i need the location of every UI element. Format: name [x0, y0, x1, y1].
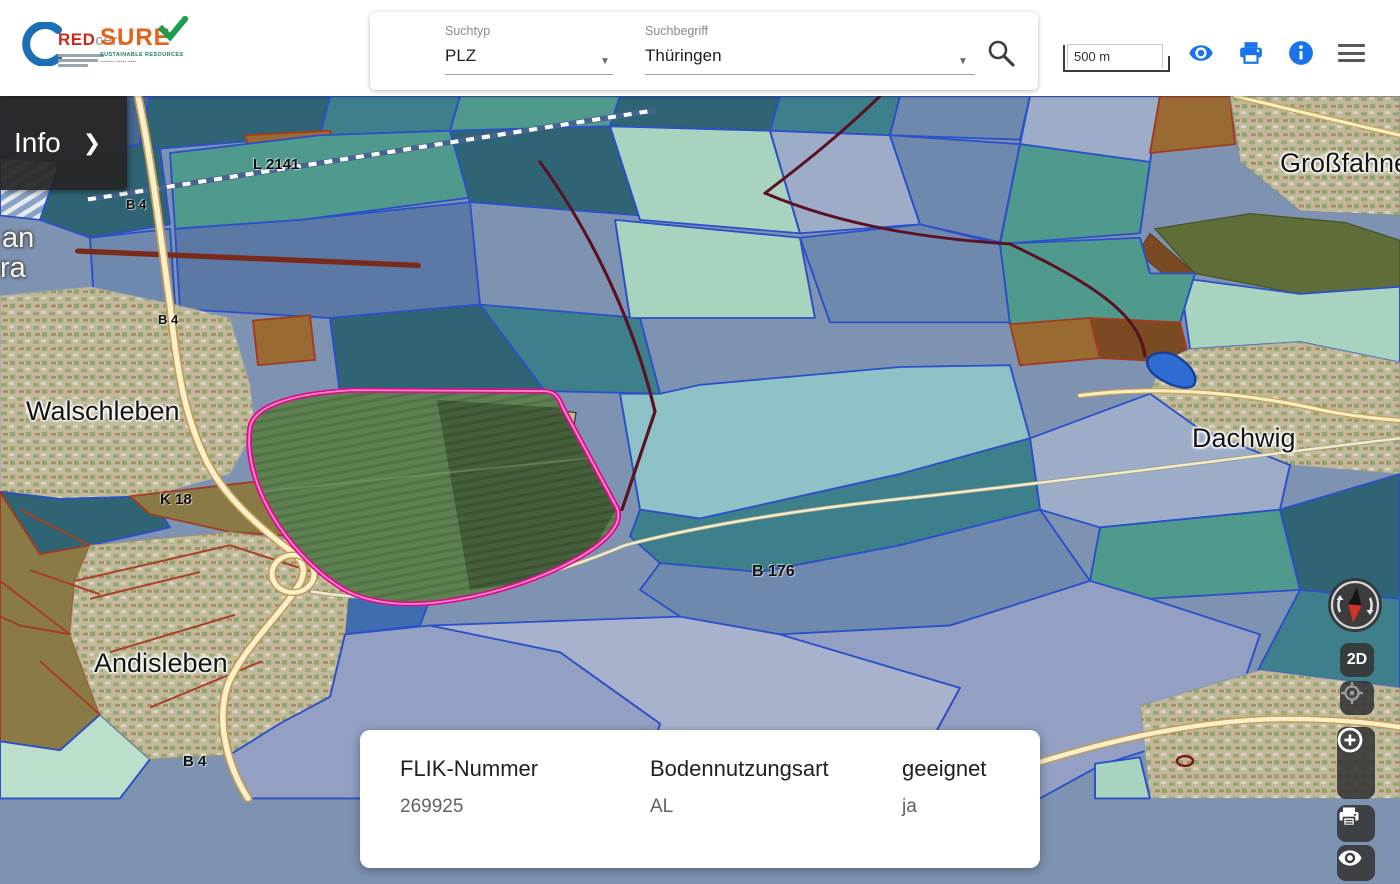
- map-view[interactable]: Walschleben Andisleben Dachwig Großfahne…: [0, 96, 1400, 884]
- parcel-info-card: FLIK-Nummer 269925 Bodennutzungsart AL g…: [360, 730, 1040, 868]
- sure-smallprint: ▪▪▪▪▪▪▪ ▪▪▪▪▪ ▪▪▪▪: [100, 59, 190, 65]
- search-card: Suchtyp PLZ ▼ Suchbegriff Thüringen ▼: [370, 12, 1038, 90]
- mode-2d-label: 2D: [1347, 651, 1367, 669]
- search-type-value[interactable]: PLZ: [445, 46, 613, 66]
- info-button[interactable]: [1288, 40, 1314, 66]
- locate-button[interactable]: [1340, 681, 1374, 715]
- scale-bar: 500 m: [1063, 42, 1170, 72]
- flik-number-column: FLIK-Nummer 269925: [400, 756, 650, 868]
- field-underline: [445, 74, 613, 75]
- suitability-column: geeignet ja: [902, 756, 1040, 868]
- sure-check-icon: [158, 16, 188, 42]
- toggle-2d-button[interactable]: 2D: [1340, 643, 1374, 677]
- minus-icon: [1337, 727, 1363, 753]
- eye-icon: [1188, 40, 1214, 66]
- search-type-label: Suchtyp: [445, 24, 613, 38]
- suitability-label: geeignet: [902, 756, 1040, 782]
- scale-label: 500 m: [1067, 44, 1163, 68]
- crosshair-icon: [1340, 681, 1364, 705]
- chevron-down-icon[interactable]: ▼: [600, 56, 610, 67]
- sure-logo: SURE SUSTAINABLE RESOURCES ▪▪▪▪▪▪▪ ▪▪▪▪▪…: [100, 26, 190, 76]
- layer-visibility-button[interactable]: [1337, 845, 1375, 881]
- menu-button[interactable]: [1338, 44, 1365, 64]
- print-button[interactable]: [1238, 40, 1264, 66]
- redcert-crescent-icon: [22, 22, 62, 66]
- land-use-value: AL: [650, 796, 902, 818]
- zoom-controls: [1337, 727, 1375, 799]
- zoom-out-button[interactable]: [1337, 763, 1375, 799]
- flik-number-label: FLIK-Nummer: [400, 756, 650, 782]
- flik-number-value: 269925: [400, 796, 650, 818]
- map-print-button[interactable]: [1337, 805, 1375, 842]
- land-use-label: Bodennutzungsart: [650, 756, 902, 782]
- chevron-down-icon[interactable]: ▼: [958, 56, 968, 67]
- printer-icon: [1337, 805, 1361, 829]
- search-term-value[interactable]: Thüringen: [645, 46, 975, 66]
- printer-icon: [1238, 40, 1264, 66]
- field-underline: [645, 74, 975, 75]
- search-button[interactable]: [986, 38, 1026, 78]
- suitability-value: ja: [902, 796, 1040, 818]
- app-header: REDcert SURE SUSTAINABLE RESOURCES ▪▪▪▪▪…: [0, 0, 1400, 96]
- compass-control[interactable]: [1328, 578, 1382, 632]
- info-panel-toggle[interactable]: Info ❯: [0, 96, 127, 190]
- info-panel-label: Info: [14, 127, 61, 159]
- search-term-label: Suchbegriff: [645, 24, 975, 38]
- redcert-smallprint: [58, 54, 104, 67]
- land-use-column: Bodennutzungsart AL: [650, 756, 902, 868]
- eye-icon: [1337, 845, 1363, 871]
- search-type-select[interactable]: Suchtyp PLZ ▼: [445, 24, 613, 66]
- info-icon: [1288, 40, 1314, 66]
- visibility-toggle-button[interactable]: [1188, 40, 1214, 66]
- compass-icon: [1328, 578, 1382, 632]
- chevron-right-icon: ❯: [83, 130, 101, 156]
- search-icon: [986, 38, 1016, 68]
- search-term-select[interactable]: Suchbegriff Thüringen ▼: [645, 24, 975, 66]
